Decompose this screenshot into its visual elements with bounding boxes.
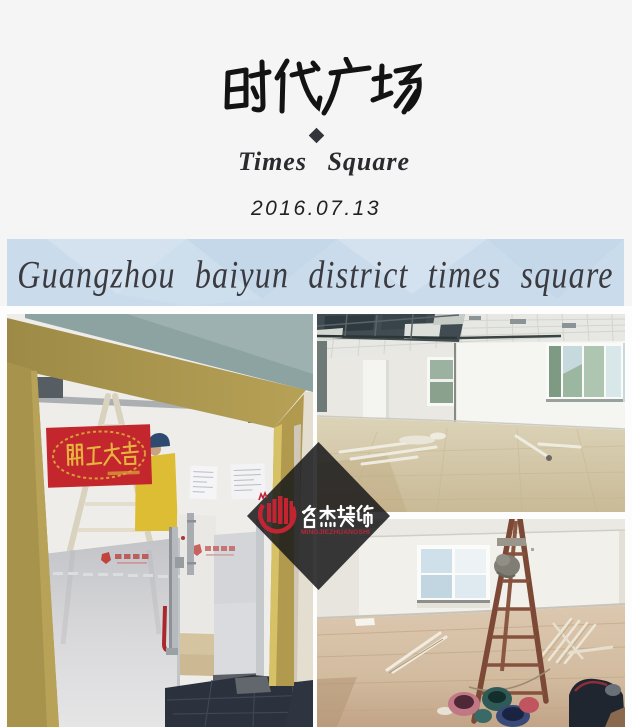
svg-text:MINGJIEZHUANGSHI: MINGJIEZHUANGSHI — [301, 529, 370, 536]
